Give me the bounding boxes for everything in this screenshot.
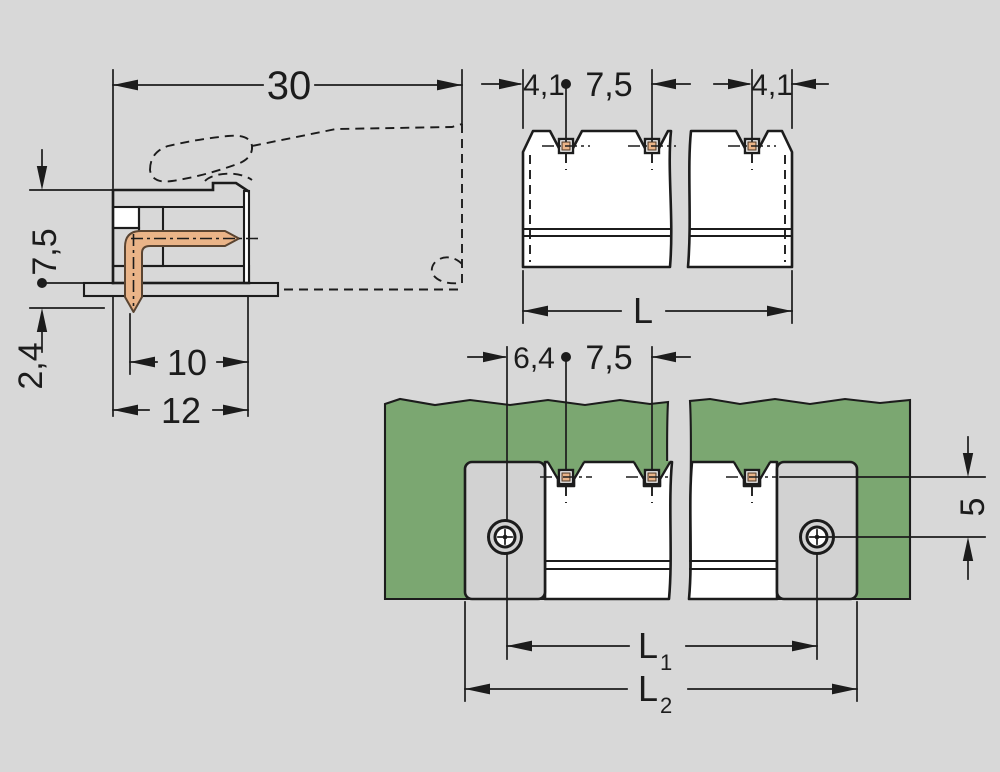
dim-2-4-label: 2,4 bbox=[12, 342, 50, 389]
side-view: 30 7,5 2,4 10 12 bbox=[12, 64, 462, 431]
dim-10: 10 bbox=[130, 342, 248, 383]
pcb-section bbox=[84, 283, 278, 296]
dim-30: 30 bbox=[113, 64, 462, 108]
dim-6-4-label: 6,4 bbox=[513, 342, 555, 375]
housing-top-wall-hatch bbox=[113, 183, 248, 207]
housing-slot bbox=[113, 207, 139, 228]
dim-2-4: 2,4 bbox=[12, 308, 50, 390]
dim-7-5-side-label: 7,5 bbox=[26, 228, 64, 275]
housing-mating-face bbox=[244, 191, 249, 283]
dim-L2-subscript: 2 bbox=[660, 693, 672, 718]
dim-L-label: L bbox=[633, 290, 653, 331]
dim-4-1-left-label: 4,1 bbox=[523, 69, 565, 102]
connector-dimension-drawing: 30 7,5 2,4 10 12 bbox=[0, 0, 1000, 772]
solder-pin bbox=[125, 231, 261, 312]
mounted-view: 6,4 7,5 5 L 1 bbox=[385, 339, 992, 718]
dim-L2-label: L bbox=[638, 668, 658, 709]
dim-5-label: 5 bbox=[954, 498, 992, 517]
dim-12: 12 bbox=[113, 390, 248, 431]
dim-L1-subscript: 1 bbox=[660, 650, 672, 675]
dim-7-5-front-label: 7,5 bbox=[585, 66, 632, 104]
dim-4-1-right-label: 4,1 bbox=[751, 69, 793, 102]
dim-7-5-mounted-label: 7,5 bbox=[585, 339, 632, 377]
dim-10-label: 10 bbox=[167, 342, 207, 383]
dim-12-label: 12 bbox=[161, 390, 201, 431]
dim-L1-label: L bbox=[638, 625, 658, 666]
front-body-right-segment bbox=[688, 131, 792, 267]
dim-7-5-side: 7,5 bbox=[26, 150, 64, 288]
dim-L: L bbox=[523, 271, 792, 331]
technical-drawing-page: 30 7,5 2,4 10 12 bbox=[0, 0, 1000, 772]
dim-30-label: 30 bbox=[267, 64, 312, 108]
mounted-body-right-segment bbox=[689, 462, 777, 599]
front-view: 4,1 7,5 4,1 L bbox=[482, 66, 828, 331]
